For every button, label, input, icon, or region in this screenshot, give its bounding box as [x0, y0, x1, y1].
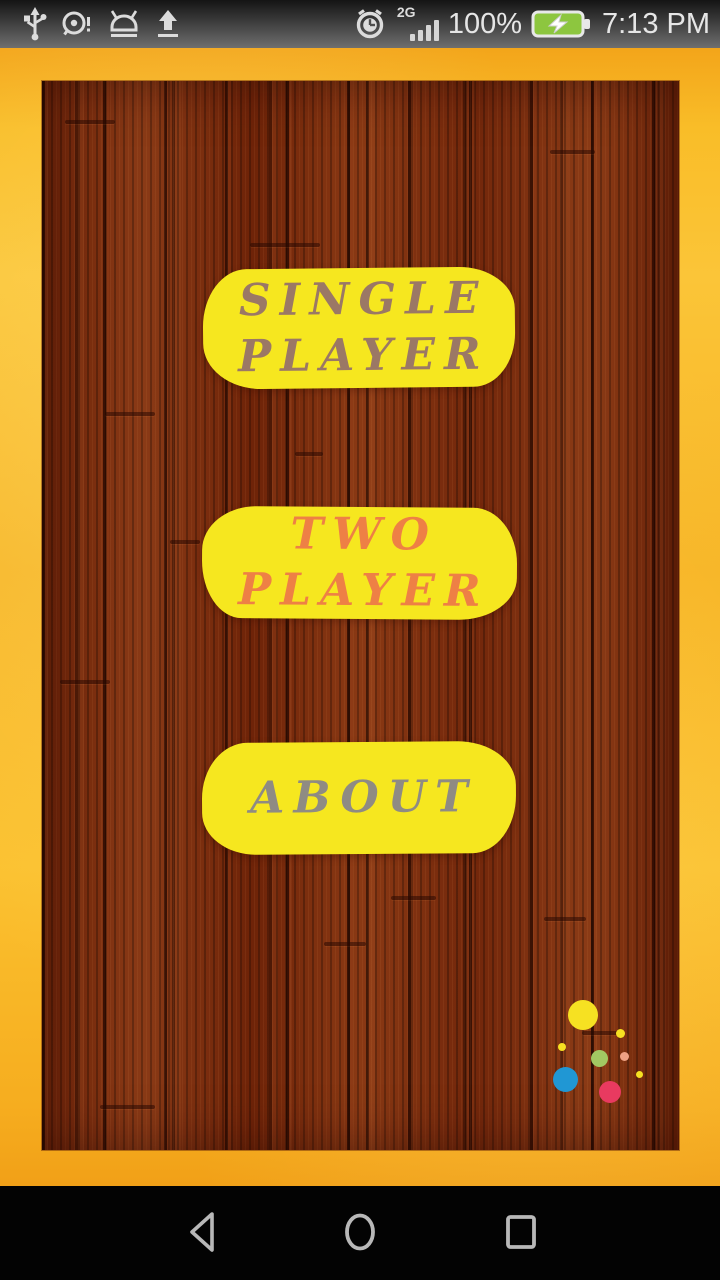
plank-seam — [550, 150, 595, 154]
about-label: ABOUT — [241, 769, 477, 827]
network-type-label: 2G — [397, 6, 416, 19]
decor-dot — [636, 1071, 643, 1078]
two-player-label-line1: TWO — [281, 506, 438, 563]
alarm-clock-icon — [352, 6, 388, 42]
plank-seam — [324, 942, 366, 946]
about-button[interactable]: ABOUT — [202, 741, 517, 855]
signal-strength-icon: 2G — [397, 6, 439, 44]
decor-dot — [616, 1029, 625, 1038]
android-debug-icon — [106, 7, 142, 41]
back-icon — [187, 1211, 217, 1256]
single-player-button[interactable]: SINGLE PLAYER — [202, 266, 515, 389]
battery-charging-icon — [531, 7, 593, 41]
plank-seam — [295, 452, 323, 456]
android-nav-bar — [0, 1186, 720, 1280]
signal-bars — [410, 20, 439, 41]
home-button[interactable] — [300, 1186, 420, 1280]
status-bar: 2G 100% 7:13 PM — [0, 0, 720, 48]
decor-dot — [558, 1043, 566, 1051]
decor-dot — [553, 1067, 578, 1092]
status-bar-right: 2G 100% 7:13 PM — [352, 0, 710, 48]
usb-icon — [22, 6, 48, 42]
two-player-button[interactable]: TWO PLAYER — [202, 506, 518, 620]
single-player-label-line2: PLAYER — [229, 327, 490, 386]
app-background: SINGLE PLAYER TWO PLAYER ABOUT — [0, 48, 720, 1186]
plank-seam — [544, 917, 586, 921]
plank-seam — [65, 120, 115, 124]
plank-seam — [105, 412, 155, 416]
decor-dot — [599, 1081, 621, 1103]
alert-icon — [60, 7, 94, 41]
plank-seam — [60, 680, 110, 684]
back-button[interactable] — [142, 1186, 262, 1280]
recents-icon — [504, 1213, 538, 1254]
clock-label: 7:13 PM — [602, 0, 710, 48]
phone-screen: 2G 100% 7:13 PM — [0, 0, 720, 1280]
home-icon — [343, 1212, 377, 1255]
decor-dot — [568, 1000, 598, 1030]
wood-board: SINGLE PLAYER TWO PLAYER ABOUT — [42, 81, 679, 1150]
plank-seam — [100, 1105, 155, 1109]
upload-icon — [154, 7, 182, 41]
plank-seam — [391, 896, 436, 900]
decor-dot — [591, 1050, 608, 1067]
two-player-label-line2: PLAYER — [229, 562, 490, 620]
status-bar-left — [22, 0, 182, 48]
plank-seam — [250, 243, 320, 247]
battery-percent-label: 100% — [448, 0, 522, 48]
single-player-label-line1: SINGLE — [230, 271, 488, 330]
decor-dot — [620, 1052, 629, 1061]
recents-button[interactable] — [461, 1186, 581, 1280]
plank-seam — [170, 540, 200, 544]
